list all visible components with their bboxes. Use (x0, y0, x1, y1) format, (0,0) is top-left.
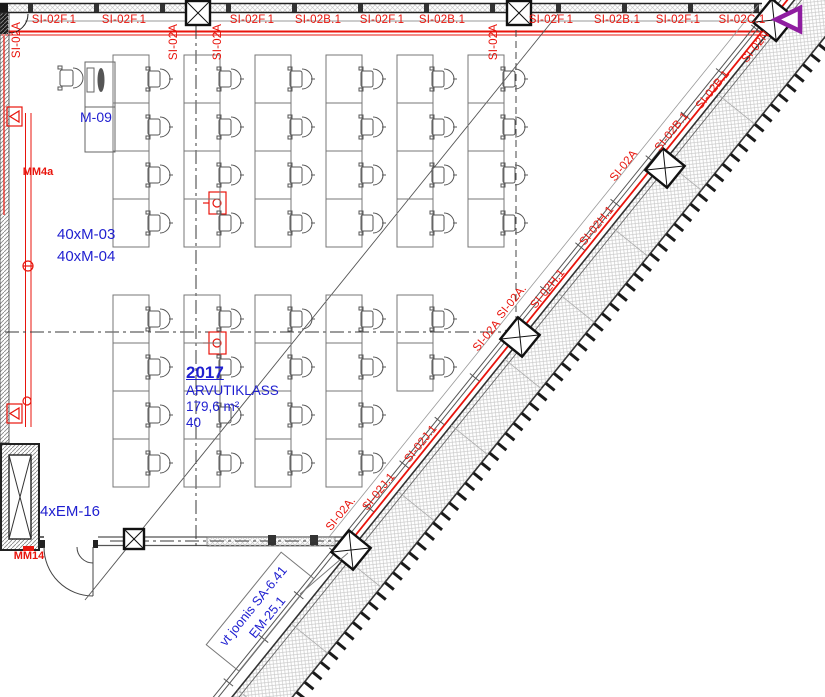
chair-icon (430, 163, 457, 187)
desk-unit (255, 199, 315, 247)
room-area: 179,6 m² (186, 399, 279, 415)
wall-detector-icon (23, 261, 33, 271)
column (507, 1, 531, 25)
chair-icon (146, 355, 173, 379)
chair-icon (217, 67, 244, 91)
mm4a-label: MM4a (23, 166, 54, 178)
desk-unit (113, 391, 173, 439)
teacher-chair-icon (58, 66, 83, 90)
teacher-station (58, 62, 115, 152)
chair-icon (430, 67, 457, 91)
desk-unit (326, 103, 386, 151)
chair-icon (146, 67, 173, 91)
desk-unit (255, 439, 315, 487)
desk-unit (326, 295, 386, 343)
chair-icon (359, 403, 386, 427)
chair-icon (146, 211, 173, 235)
mm14-label: MM14 (14, 550, 45, 562)
chair-icon (359, 355, 386, 379)
chair-icon (217, 307, 244, 331)
desk-unit (397, 103, 457, 151)
desk-unit (255, 103, 315, 151)
desk-unit (113, 295, 173, 343)
construction-line (85, 14, 558, 600)
chair-icon (146, 307, 173, 331)
chair-icon (501, 163, 528, 187)
desk-unit (184, 439, 244, 487)
desk-unit (184, 103, 244, 151)
chair-icon (288, 307, 315, 331)
floor-plan-canvas (0, 0, 825, 697)
desk-unit (468, 151, 528, 199)
desk-unit (326, 343, 386, 391)
chair-icon (146, 163, 173, 187)
chair-icon (430, 355, 457, 379)
desk-unit (113, 55, 173, 103)
desk-unit (326, 439, 386, 487)
room-capacity: 40 (186, 415, 279, 431)
desk-unit (468, 103, 528, 151)
desk-unit (326, 55, 386, 103)
chair-icon (359, 307, 386, 331)
room-number: 2017 (186, 363, 279, 383)
chair-icon (146, 451, 173, 475)
chair-icon (288, 115, 315, 139)
axis-devices (203, 192, 226, 354)
desk-unit (397, 55, 457, 103)
desk-unit (113, 103, 173, 151)
wall-speaker-icon-2 (7, 397, 31, 423)
chair-icon (288, 163, 315, 187)
door-swing-bottom (44, 547, 93, 596)
device-icon-1 (203, 192, 226, 214)
column (186, 1, 210, 25)
chair-icon (146, 115, 173, 139)
desk-unit (326, 391, 386, 439)
desk-unit (255, 55, 315, 103)
door-swing-bottom-small (77, 547, 93, 563)
door-swing-top-left (9, 14, 28, 33)
desk-unit (326, 199, 386, 247)
chair-icon (501, 211, 528, 235)
chair-icon (430, 211, 457, 235)
desk-unit (113, 439, 173, 487)
desk-unit (113, 151, 173, 199)
furniture-note: 40xM-03 40xM-04 (57, 224, 115, 268)
chair-count-label: 40xM-04 (57, 246, 115, 268)
shaft (1, 444, 39, 551)
chair-icon (288, 67, 315, 91)
chair-icon (217, 211, 244, 235)
chair-icon (288, 403, 315, 427)
chair-icon (288, 211, 315, 235)
chair-icon (288, 451, 315, 475)
desk-unit (468, 199, 528, 247)
chair-icon (217, 163, 244, 187)
chair-icon (430, 115, 457, 139)
chair-icon (359, 115, 386, 139)
diagonal-label-leader (329, 5, 758, 537)
chair-icon (288, 355, 315, 379)
top-wall (0, 3, 768, 35)
left-wall (0, 13, 33, 443)
desk-unit (184, 295, 244, 343)
desk-unit (255, 151, 315, 199)
desk-unit (113, 343, 173, 391)
chair-icon (217, 115, 244, 139)
desk-unit (397, 199, 457, 247)
chair-icon (146, 403, 173, 427)
floor-plan-drawing: SI-02F.1SI-02F.1SI-02F.1SI-02B.1SI-02F.1… (0, 0, 825, 697)
chair-icon (501, 115, 528, 139)
outlets-label: 4xEM-16 (40, 503, 100, 520)
chair-icon (359, 163, 386, 187)
column (124, 529, 144, 549)
room-name: ARVUTIKLASS (186, 383, 279, 399)
desk-count-label: 40xM-03 (57, 224, 115, 246)
desk-unit (397, 343, 457, 391)
desk-unit (397, 295, 457, 343)
room-info: 2017 ARVUTIKLASS 179,6 m² 40 (186, 363, 279, 431)
desk-unit (255, 295, 315, 343)
chair-icon (430, 307, 457, 331)
desk-unit (184, 55, 244, 103)
teacher-unit-label: M-09 (80, 109, 112, 125)
desk-unit (397, 151, 457, 199)
chair-icon (217, 451, 244, 475)
desk-unit (113, 199, 173, 247)
chair-icon (359, 67, 386, 91)
desk-unit (326, 151, 386, 199)
